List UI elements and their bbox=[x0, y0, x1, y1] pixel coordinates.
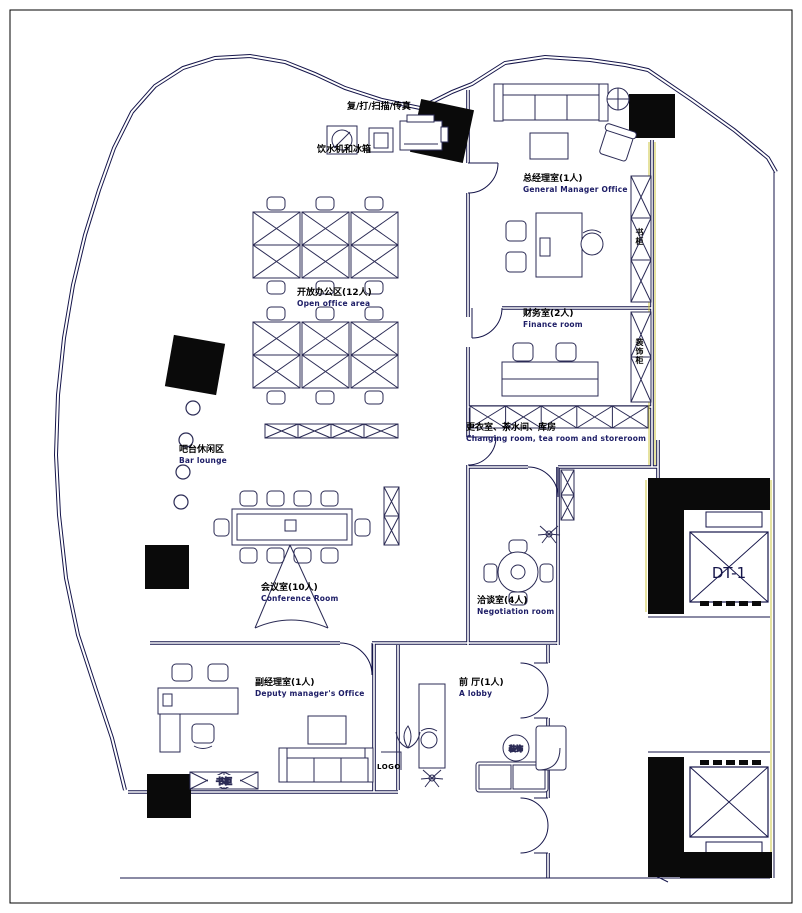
room-label-changing: 更衣室、茶水间、库房 Changing room, tea room and s… bbox=[466, 423, 646, 443]
outer-wall bbox=[56, 56, 776, 790]
floor-plan-page: DT-1 bbox=[0, 0, 802, 913]
room-label-zh: 更衣室、茶水间、库房 bbox=[466, 423, 646, 434]
label-wall-bookcase: 书柜 bbox=[634, 228, 645, 246]
finance-furniture bbox=[502, 343, 598, 396]
room-label-finance: 财务室(2人) Finance room bbox=[523, 309, 583, 329]
label-copier-zh: 复/打/扫描/传真 bbox=[347, 102, 411, 113]
room-label-en: Negotiation room bbox=[477, 607, 554, 616]
plant bbox=[421, 770, 443, 787]
negotiation-furniture bbox=[484, 470, 574, 605]
room-label-en: Bar lounge bbox=[179, 456, 227, 465]
column bbox=[629, 94, 675, 138]
desk-cluster bbox=[253, 307, 398, 404]
room-label-en: Conference Room bbox=[261, 594, 339, 603]
decor-circle-label: 装饰 bbox=[508, 744, 523, 753]
conference-room-furniture bbox=[214, 487, 399, 628]
room-label-zh: 财务室(2人) bbox=[523, 309, 583, 320]
label-logo-text: LOGO bbox=[377, 763, 401, 771]
room-label-zh: 副经理室(1人) bbox=[255, 678, 365, 689]
lobby-furniture: 装饰 bbox=[381, 684, 566, 792]
column bbox=[165, 335, 225, 395]
room-label-zh: 开放办公区(12人) bbox=[297, 288, 372, 299]
column bbox=[145, 545, 189, 589]
column bbox=[147, 774, 191, 818]
room-label-en: Deputy manager's Office bbox=[255, 689, 365, 698]
room-label-negotiation: 洽谈室(4人) Negotiation room bbox=[477, 596, 554, 616]
room-label-en: A lobby bbox=[459, 689, 504, 698]
room-label-general-manager: 总经理室(1人) General Manager Office bbox=[523, 174, 628, 194]
room-label-zh: 前 厅(1人) bbox=[459, 678, 504, 689]
label-logo: LOGO bbox=[377, 763, 401, 771]
room-label-zh: 会议室(10人) bbox=[261, 583, 339, 594]
cabinet-row bbox=[265, 424, 398, 438]
low-bookcase: 书柜 bbox=[190, 772, 258, 789]
elevator-label: DT-1 bbox=[712, 564, 746, 582]
room-label-zh: 洽谈室(4人) bbox=[477, 596, 554, 607]
floor-plan-drawing: DT-1 bbox=[0, 0, 802, 913]
room-label-en: Finance room bbox=[523, 320, 583, 329]
desk-cluster bbox=[253, 197, 398, 294]
label-water-zh: 饮水机和冰箱 bbox=[317, 145, 371, 156]
room-label-en: General Manager Office bbox=[523, 185, 628, 194]
room-label-bar-lounge: 吧台休闲区 Bar lounge bbox=[179, 445, 227, 465]
label-copier: 复/打/扫描/传真 bbox=[347, 102, 411, 113]
room-label-conference: 会议室(10人) Conference Room bbox=[261, 583, 339, 603]
room-label-open-office: 开放办公区(12人) Open office area bbox=[297, 288, 372, 308]
room-label-lobby: 前 厅(1人) A lobby bbox=[459, 678, 504, 698]
room-label-zh: 吧台休闲区 bbox=[179, 445, 227, 456]
room-label-en: Open office area bbox=[297, 299, 372, 308]
elevator-top: DT-1 bbox=[648, 478, 770, 614]
room-label-deputy-manager: 副经理室(1人) Deputy manager's Office bbox=[255, 678, 365, 698]
room-label-en: Changing room, tea room and storeroom bbox=[466, 434, 646, 443]
low-bookcase-label: 书柜 bbox=[216, 776, 232, 786]
label-water: 饮水机和冰箱 bbox=[317, 145, 371, 156]
reception-desk bbox=[419, 684, 445, 768]
room-label-zh: 总经理室(1人) bbox=[523, 174, 628, 185]
open-office-desks bbox=[253, 197, 398, 438]
label-wall-decor-cabinet: 装饰柜 bbox=[634, 338, 645, 365]
elevator-bottom bbox=[648, 757, 772, 878]
